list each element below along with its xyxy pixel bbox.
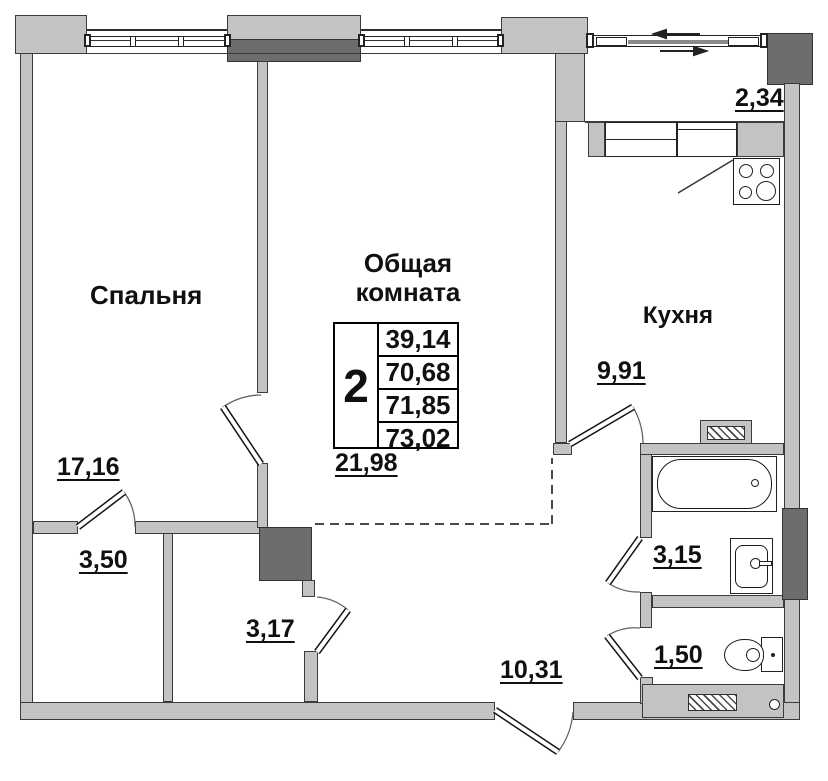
wall-bathroom-left <box>640 454 652 538</box>
stove-leader-line <box>678 160 733 193</box>
summary-value-2: 70,68 <box>379 357 457 390</box>
vent-grille-kitchen <box>707 426 745 440</box>
apartment-summary-table: 2 39,14 70,68 71,85 73,02 <box>333 322 459 449</box>
wall-balcony-right <box>737 121 784 157</box>
window-bedroom-mullion-1 <box>130 36 136 47</box>
wall-bedroom-living-lower <box>257 463 268 528</box>
pipe-riser <box>769 699 780 710</box>
kitchen-label: Кухня <box>634 302 722 330</box>
wall-corner-top-left <box>15 15 87 54</box>
floor-plan: Спальня 17,16 Общая комната 21,98 Кухня … <box>0 0 828 781</box>
window-living-endcap-right <box>497 34 504 47</box>
wall-right <box>784 83 800 720</box>
vent-shaft-top-right <box>767 33 813 85</box>
stove-burner-2 <box>760 164 774 178</box>
window-balcony-sash-right <box>728 37 759 46</box>
rooms-count-cell: 2 <box>335 324 379 447</box>
balcony-door-unit <box>605 122 677 157</box>
door-bathroom <box>608 538 640 592</box>
toilet-area: 1,50 <box>654 641 703 670</box>
window-sill-line <box>87 53 502 54</box>
sink-faucet-stem <box>759 561 772 566</box>
wall-left <box>20 53 33 720</box>
window-bedroom-mullion-2 <box>178 36 184 47</box>
summary-value-3: 71,85 <box>379 390 457 423</box>
wall-living-kitchen <box>555 121 567 443</box>
bathroom-area: 3,15 <box>653 541 702 570</box>
vent-shaft-top <box>227 39 361 62</box>
vent-grille-toilet <box>688 694 737 711</box>
hallway-area: 10,31 <box>500 656 563 685</box>
window-bedroom-endcap-right <box>224 34 231 47</box>
living-room-label-line2: комната <box>330 278 486 307</box>
window-living-mullion-2 <box>452 36 458 47</box>
window-living-frame <box>364 36 498 47</box>
bedroom-label: Спальня <box>90 280 202 311</box>
toilet-bowl-inner <box>746 648 760 662</box>
door-toilet <box>607 628 640 678</box>
wall-bedroom-bottom-a <box>33 521 78 534</box>
balcony-window-unit <box>677 122 737 157</box>
stove-burner-3 <box>739 186 752 199</box>
wall-kitchen-door-jamb <box>553 443 572 455</box>
wall-bedroom-bottom-b <box>135 521 268 534</box>
wall-toilet-top <box>652 595 784 608</box>
window-balcony-bottom-line <box>593 46 762 47</box>
living-room-label-line1: Общая <box>330 249 486 278</box>
wall-bedroom-living-upper <box>257 61 268 393</box>
window-balcony-endcap-right <box>760 33 768 48</box>
bathtub-drain <box>751 479 759 487</box>
wall-corner-top-right <box>501 17 588 54</box>
stove-burner-4 <box>756 181 776 201</box>
door-kitchen <box>570 407 643 444</box>
vent-shaft-middle <box>259 527 312 581</box>
sliding-arrow-left <box>654 30 700 38</box>
wall-closet-right-jamb <box>302 580 315 597</box>
wall-living-balcony <box>555 53 585 122</box>
window-balcony-endcap-left <box>586 33 594 48</box>
door-entrance <box>495 710 573 752</box>
summary-value-1: 39,14 <box>379 324 457 357</box>
wall-closet-divider <box>163 533 173 702</box>
wall-bottom-left <box>20 702 495 720</box>
window-bedroom-outer-line <box>87 29 227 31</box>
window-living-mullion-1 <box>404 36 410 47</box>
window-balcony-rail <box>628 40 728 44</box>
living-room-label: Общая комната <box>330 249 486 307</box>
wall-bathroom-toilet <box>640 592 652 628</box>
closet-right-area: 3,17 <box>246 615 295 644</box>
door-bedroom <box>223 395 261 464</box>
wall-closet-right-lower <box>304 651 318 702</box>
summary-value-4: 73,02 <box>379 423 457 454</box>
kitchen-area: 9,91 <box>597 357 646 386</box>
window-living-outer-line <box>361 29 502 31</box>
stove-burner-1 <box>739 164 753 178</box>
wall-balcony-pier <box>588 121 605 157</box>
window-balcony-top-line <box>593 35 762 36</box>
vent-shaft-bathroom-right <box>782 508 808 600</box>
toilet-tank-dot <box>771 653 775 657</box>
window-bedroom-frame <box>90 36 225 47</box>
door-bedroom-hall <box>78 492 135 527</box>
sliding-arrow-right <box>660 47 706 55</box>
bedroom-area: 17,16 <box>57 453 120 482</box>
closet-left-area: 3,50 <box>79 546 128 575</box>
balcony-area: 2,34 <box>735 84 784 113</box>
wall-pier-top <box>227 15 361 40</box>
door-closet-right <box>317 597 348 652</box>
wall-bathroom-top <box>640 443 784 455</box>
window-balcony-sash-left <box>596 37 627 46</box>
